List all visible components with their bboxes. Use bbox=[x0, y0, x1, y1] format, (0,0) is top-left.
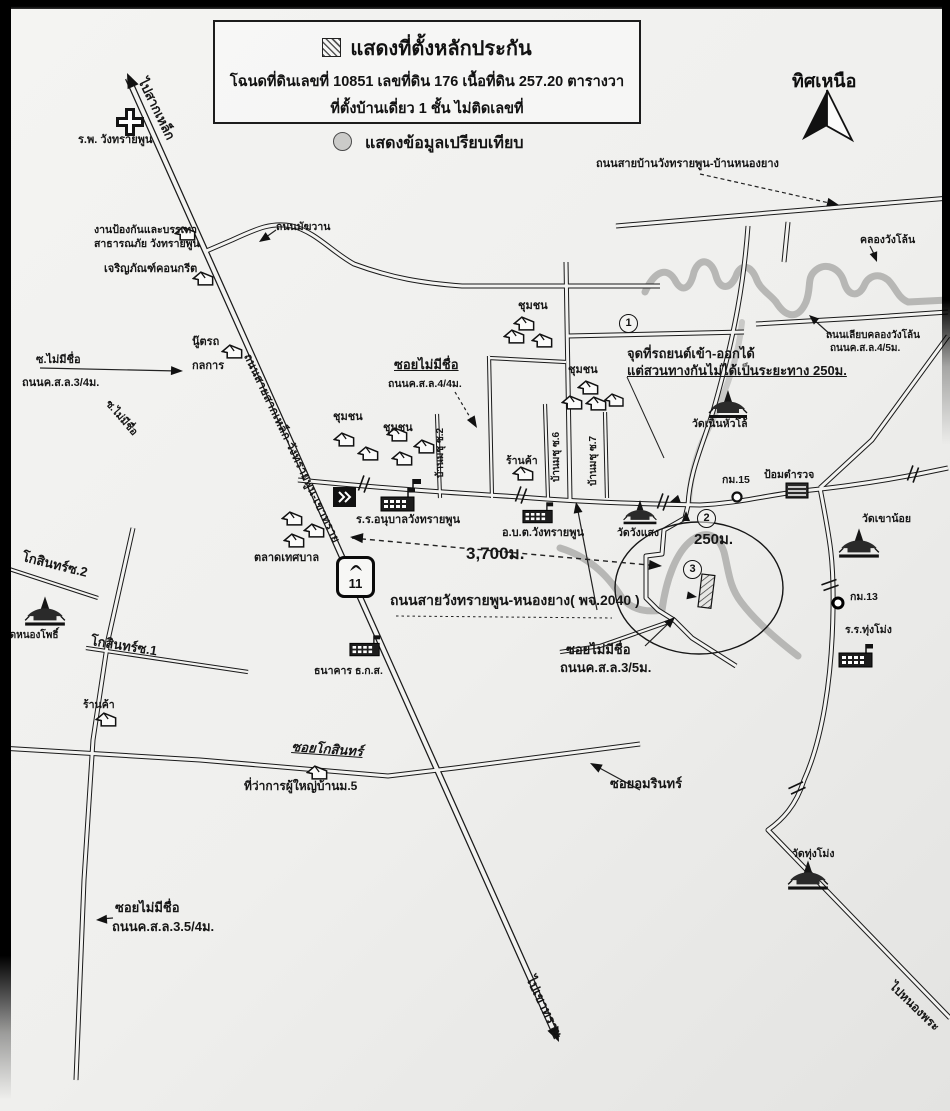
label-soi-amarin: ซอยอมรินทร์ bbox=[610, 777, 682, 792]
compass-label: ทิศเหนือ bbox=[792, 66, 856, 95]
label-wat-nong-pho: วัดหนองโพธิ์ bbox=[4, 630, 59, 642]
comparison-circle-icon bbox=[333, 132, 352, 151]
title-box: แสดงที่ตั้งหลักประกัน โฉนดที่ดินเลขที่ 1… bbox=[213, 20, 641, 124]
highway-number: 11 bbox=[339, 577, 372, 590]
label-shop-bottomleft: ร้านค้า bbox=[83, 699, 115, 711]
subject-property-icon bbox=[698, 574, 715, 608]
label-distance-250m: 250ม. bbox=[694, 531, 733, 548]
label-km13: กม.13 bbox=[850, 591, 878, 603]
label-soi-noname-west: ซ.ไม่มีชื่อ bbox=[36, 354, 81, 367]
collateral-hatch-icon bbox=[322, 38, 341, 57]
label-khlong-road-1: ถนนเลียบคลองวังโล้น bbox=[826, 330, 920, 342]
label-wat-wang-saeng: วัดวังแสง bbox=[617, 527, 659, 539]
label-wat-khao-noi: วัดเขาน้อย bbox=[862, 513, 911, 525]
label-municipal-market: ตลาดเทศบาล bbox=[254, 552, 319, 565]
garuda-icon bbox=[349, 563, 363, 572]
label-community-1: ชุมชน bbox=[518, 300, 548, 313]
label-road-2040: ถนนสายวังทรายพูน-หนองยาง( พจ.2040 ) bbox=[390, 592, 640, 608]
school-anuban-icon bbox=[381, 488, 415, 511]
km13-marker-icon bbox=[833, 598, 843, 608]
bank-baac-icon bbox=[350, 635, 380, 655]
label-community-2: ชุมชน bbox=[333, 411, 363, 424]
label-khlong-wang-lon: คลองวังโล้น bbox=[860, 234, 915, 246]
temple-khao-noi-icon bbox=[839, 528, 879, 557]
label-charoen-concrete: เจริญภัณฑ์คอนกรีต bbox=[104, 263, 197, 276]
label-wat-noen-hua-lo: วัดเนินหัวโล้ bbox=[692, 418, 748, 430]
label-disaster-office-1: งานป้องกันและบรรเทา bbox=[94, 224, 197, 236]
deed-info: โฉนดที่ดินเลขที่ 10851 เลขที่ดิน 176 เนื… bbox=[215, 70, 639, 93]
label-topright-road: ถนนสายบ้านวังทรายพูน-บ้านหนองยาง bbox=[596, 158, 779, 171]
highway-11-shield: 11 bbox=[336, 556, 375, 598]
temple-nong-pho-icon bbox=[25, 596, 65, 625]
label-soi-2: บ้านมชุ ซ.2 bbox=[435, 428, 447, 478]
label-police-box: ป้อมตำรวจ bbox=[764, 469, 814, 481]
label-khlong-road-2: ถนนค.ส.ล.4/5ม. bbox=[830, 343, 900, 355]
label-soi-35-2: ถนนค.ส.ล.3/5ม. bbox=[560, 661, 651, 676]
label-makkhawan-road: ถนนมัฆวาน bbox=[276, 221, 330, 233]
label-soi-7: บ้านมชุ ซ.7 bbox=[588, 436, 600, 486]
label-bank-baac: ธนาคาร ธ.ก.ส. bbox=[314, 665, 383, 677]
north-arrow-icon bbox=[802, 90, 852, 140]
label-distance-3700m: 3,700ม. bbox=[466, 544, 524, 564]
police-box-icon bbox=[786, 483, 808, 498]
marker-1: 1 bbox=[619, 314, 638, 333]
label-soi-mid: ซอยไม่มีชื่อ bbox=[394, 358, 459, 373]
page-title: แสดงที่ตั้งหลักประกัน bbox=[215, 32, 639, 64]
label-soi-354-2: ถนนค.ส.ล.3.5/4ม. bbox=[112, 920, 214, 935]
school-sign-icon bbox=[333, 487, 356, 507]
title-text: แสดงที่ตั้งหลักประกัน bbox=[350, 38, 531, 60]
label-community-4: ชุมชน bbox=[568, 364, 598, 377]
marker-2: 2 bbox=[697, 509, 716, 528]
km15-marker-icon bbox=[733, 493, 742, 502]
label-garage-1: นู๊ตรถ bbox=[192, 336, 219, 349]
scanned-map-page: แสดงที่ตั้งหลักประกัน โฉนดที่ดินเลขที่ 1… bbox=[0, 0, 950, 1111]
house-info: ที่ตั้งบ้านเดี่ยว 1 ชั้น ไม่ติดเลขที่ bbox=[215, 97, 639, 120]
label-entry-note-2: แต่สวนทางกันไม่ได้เป็นระยะทาง 250ม. bbox=[627, 364, 847, 379]
label-disaster-office-2: สาธารณภัย วังทรายพูน bbox=[94, 238, 200, 250]
label-shop-main-road: ร้านค้า bbox=[506, 455, 538, 467]
legend-comparison: แสดงข้อมูลเปรียบเทียบ bbox=[333, 131, 523, 156]
label-km15: กม.15 bbox=[722, 474, 750, 486]
label-school-thungmong: ร.ร.ทุ่งโม่ง bbox=[845, 624, 892, 636]
label-hospital: ร.พ. วังทรายพูน bbox=[78, 134, 152, 147]
school-thungmong-icon bbox=[839, 644, 873, 667]
label-soi-35-1: ซอยไม่มีชื่อ bbox=[566, 643, 631, 658]
label-village-head-office: ที่ว่าการผู้ใหญ่บ้านม.5 bbox=[244, 780, 357, 794]
label-soi-mid-road: ถนนค.ส.ล.4/4ม. bbox=[388, 378, 462, 390]
label-soi-noname-west-road: ถนนค.ส.ล.3/4ม. bbox=[22, 377, 99, 390]
marker-3: 3 bbox=[683, 560, 702, 579]
label-garage-2: กลการ bbox=[192, 360, 224, 373]
label-soi-354-1: ซอยไม่มีชื่อ bbox=[115, 901, 180, 916]
label-soi-6: บ้านมชุ ซ.6 bbox=[551, 432, 563, 482]
label-community-3: ชุมชน bbox=[383, 422, 413, 435]
label-school-anuban: ร.ร.อนุบาลวังทรายพูน bbox=[356, 514, 460, 527]
legend-comparison-label: แสดงข้อมูลเปรียบเทียบ bbox=[365, 135, 523, 152]
obt-office-icon bbox=[523, 502, 553, 522]
label-obt-office: อ.บ.ต.วังทรายพูน bbox=[502, 527, 584, 540]
label-entry-note-1: จุดที่รถยนต์เข้า-ออกได้ bbox=[627, 347, 755, 362]
label-wat-thungmong: วัดทุ่งโม่ง bbox=[792, 848, 834, 860]
